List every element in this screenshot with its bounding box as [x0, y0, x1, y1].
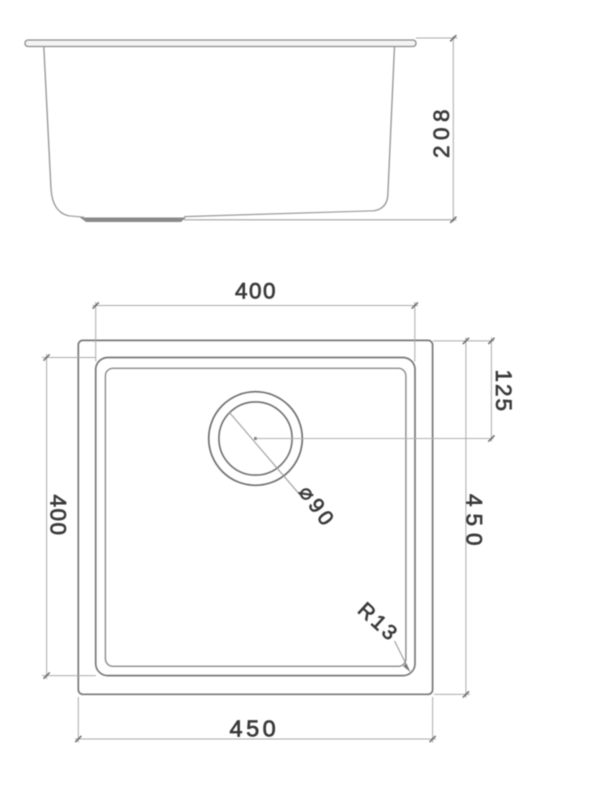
svg-text:R13: R13 [353, 598, 403, 647]
svg-text:400: 400 [235, 279, 277, 304]
svg-text:⌀90: ⌀90 [294, 481, 340, 532]
svg-text:450: 450 [230, 716, 280, 742]
svg-text:400: 400 [46, 495, 71, 537]
svg-text:450: 450 [462, 494, 487, 553]
svg-text:125: 125 [491, 370, 516, 414]
svg-text:208: 208 [429, 104, 454, 158]
